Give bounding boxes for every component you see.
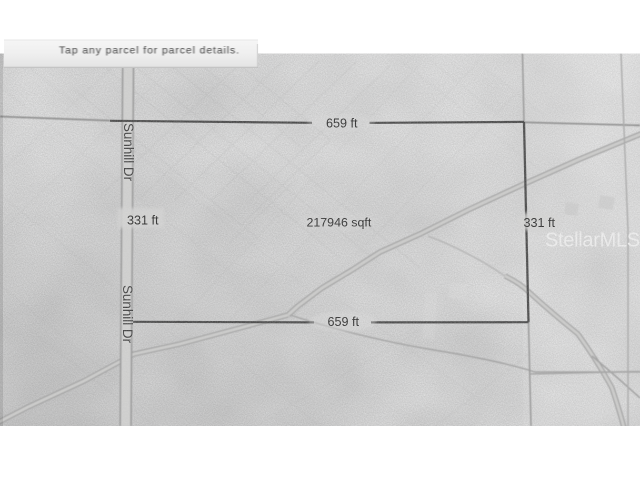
svg-text:Tap any parcel for parcel deta: Tap any parcel for parcel details. [59, 46, 239, 57]
